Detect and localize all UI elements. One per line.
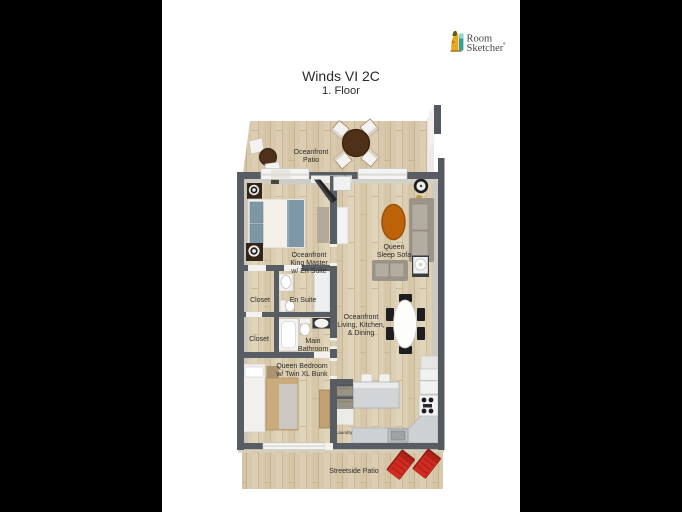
svg-text:Laundry: Laundry bbox=[336, 430, 353, 435]
svg-text:King Master: King Master bbox=[290, 260, 328, 267]
svg-text:Sleep Sofa: Sleep Sofa bbox=[377, 252, 411, 259]
svg-text:Living, Kitchen,: Living, Kitchen, bbox=[337, 322, 385, 329]
svg-text:w/ En Suite: w/ En Suite bbox=[290, 268, 327, 275]
svg-text:& Dining: & Dining bbox=[348, 330, 375, 337]
svg-text:Oceanfront: Oceanfront bbox=[344, 314, 379, 321]
svg-text:®: ® bbox=[503, 41, 507, 46]
svg-text:Sketcher: Sketcher bbox=[467, 43, 504, 54]
svg-text:Patio: Patio bbox=[303, 157, 319, 164]
svg-text:Queen Bedroom: Queen Bedroom bbox=[276, 363, 328, 370]
svg-text:Main: Main bbox=[305, 338, 320, 345]
svg-text:En Suite: En Suite bbox=[290, 297, 317, 304]
svg-text:1. Floor: 1. Floor bbox=[322, 85, 360, 97]
svg-text:Queen: Queen bbox=[383, 244, 404, 251]
svg-text:Oceanfront: Oceanfront bbox=[294, 149, 329, 156]
svg-text:Closet: Closet bbox=[250, 297, 270, 304]
svg-text:Oceanfront: Oceanfront bbox=[292, 252, 327, 259]
svg-text:Winds VI 2C: Winds VI 2C bbox=[302, 68, 380, 84]
svg-text:Closet: Closet bbox=[249, 336, 269, 343]
svg-text:Streetside Patio: Streetside Patio bbox=[329, 468, 379, 475]
svg-text:w/ Twin XL Bunk: w/ Twin XL Bunk bbox=[275, 371, 328, 378]
svg-text:Bathroom: Bathroom bbox=[298, 346, 329, 353]
